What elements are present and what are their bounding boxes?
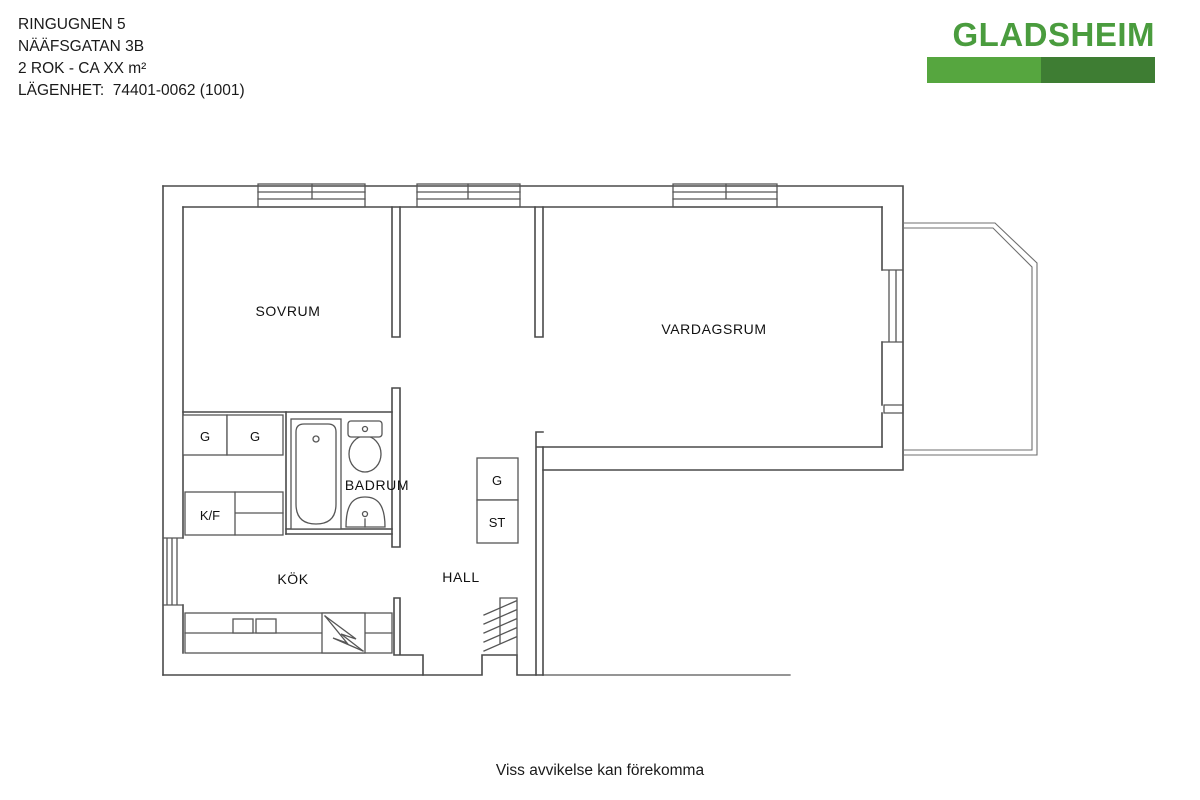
fridge-freezer-label: K/F (200, 508, 220, 523)
hall-closet-label: G (492, 473, 502, 488)
living-room-label: VARDAGSRUM (661, 321, 766, 337)
window-kitchen (163, 538, 183, 605)
floorplan-drawing: SOVRUM VARDAGSRUM BADRUM KÖK HALL G G K/… (0, 0, 1200, 800)
window-living-room-east (882, 270, 903, 342)
sink-bowl-left (233, 619, 253, 633)
window-passage (417, 184, 520, 207)
room-labels: SOVRUM VARDAGSRUM BADRUM KÖK HALL G G K/… (200, 303, 767, 587)
window-bedroom (258, 184, 365, 207)
disclaimer-text: Viss avvikelse kan förekomma (0, 762, 1200, 780)
bathroom-fixtures (291, 419, 385, 529)
sink (346, 497, 385, 527)
hall-label: HALL (442, 569, 479, 585)
cleaning-closet-label: ST (489, 515, 506, 530)
bedroom-label: SOVRUM (255, 303, 320, 319)
balcony (903, 223, 1037, 455)
windows (163, 184, 903, 605)
kitchen-fixtures (185, 613, 392, 653)
entrance-door (484, 598, 517, 655)
floorplan-page: RINGUGNEN 5 NÄÄFSGATAN 3B 2 ROK - CA XX … (0, 0, 1200, 800)
kitchen-label: KÖK (277, 570, 308, 587)
bathtub (291, 419, 341, 529)
window-living-room (673, 184, 777, 207)
stove (322, 613, 365, 653)
bathroom-label: BADRUM (345, 477, 409, 493)
closet-a-label: G (200, 429, 210, 444)
closet-b-label: G (250, 429, 260, 444)
sink-bowl-right (256, 619, 276, 633)
toilet (348, 421, 382, 472)
